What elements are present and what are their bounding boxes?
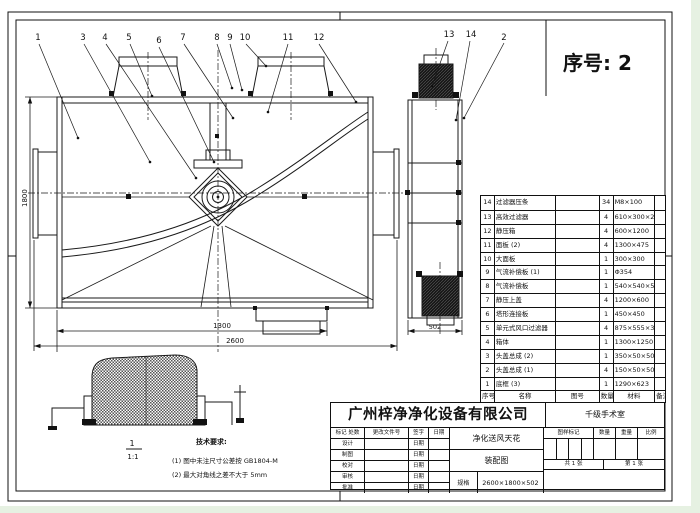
- rev-header-file: 更改文件号: [365, 428, 409, 438]
- part-remark: [655, 239, 665, 252]
- parts-header-drawing-no: 图号: [556, 391, 600, 402]
- part-spec: 1290×623: [614, 378, 656, 391]
- sign-blank: [365, 472, 409, 482]
- front-view: [28, 50, 404, 352]
- part-remark: [655, 294, 665, 307]
- part-name: 单元式风口过滤器: [495, 322, 556, 335]
- parts-row: 6 塔形连接板 1 450×450: [481, 307, 665, 321]
- sheet-total: 共 1 张: [544, 460, 604, 469]
- sign-date: 日期: [409, 472, 429, 482]
- detail-label: 1: [129, 439, 134, 448]
- part-drawing-no: [556, 294, 600, 307]
- title-block: 广州梓净净化设备有限公司 千级手术室 标记 处数 更改文件号 签字 日期 设计 …: [330, 402, 665, 490]
- tech-notes-title: 技术要求:: [196, 437, 227, 446]
- part-spec: 875×555×365: [614, 322, 656, 335]
- part-qty: 1: [600, 280, 614, 293]
- sign-date: 日期: [409, 461, 429, 471]
- part-no: 13: [481, 211, 495, 224]
- balloon-6: 6: [156, 36, 161, 46]
- parts-list: 14 过滤器压条 34 M8×100 13 高效过滤器 4 610×300×29…: [480, 195, 666, 403]
- parts-row: 7 静压上盖 4 1200×600: [481, 293, 665, 307]
- meta-header-mark: 图样标记: [544, 428, 594, 438]
- part-drawing-no: [556, 196, 600, 210]
- parts-header-row: 序号 名称 图号 数量 材料 备注: [481, 390, 665, 402]
- sign-date: 日期: [409, 483, 429, 493]
- part-remark: [655, 364, 665, 377]
- company-name: 广州梓净净化设备有限公司: [331, 403, 546, 427]
- part-remark: [655, 266, 665, 279]
- project-name: 千级手术室: [546, 403, 664, 427]
- parts-row: 2 头盖总成 (1) 4 150×50×50: [481, 363, 665, 377]
- detail-view: [48, 355, 246, 449]
- sign-date: 日期: [409, 439, 429, 449]
- part-remark: [655, 322, 665, 335]
- part-qty: 34: [600, 196, 614, 210]
- parts-row: 10 大面板 1 300×300: [481, 252, 665, 266]
- serial-number: 序号: 2: [563, 51, 632, 75]
- part-qty: 4: [600, 225, 614, 238]
- part-drawing-no: [556, 350, 600, 363]
- dim-total-width-label: 2600: [226, 337, 244, 345]
- part-drawing-no: [556, 280, 600, 293]
- parts-row: 5 单元式风口过滤器 4 875×555×365: [481, 321, 665, 335]
- sign-blank: [429, 461, 449, 471]
- part-remark: [655, 253, 665, 266]
- spec-row: 规格 2600×1800×502: [450, 472, 543, 493]
- part-remark: [655, 211, 665, 224]
- balloon-4: 4: [102, 33, 107, 43]
- part-spec: 1200×600: [614, 294, 656, 307]
- part-drawing-no: [556, 211, 600, 224]
- sign-blank: [365, 483, 409, 493]
- part-name: 气流补偿板: [495, 280, 556, 293]
- parts-header-remark: 备注: [655, 391, 665, 402]
- balloon-10: 10: [240, 33, 251, 43]
- part-no: 9: [481, 266, 495, 279]
- meta-header-qty: 数量: [594, 428, 616, 438]
- part-spec: M8×100: [614, 196, 656, 210]
- engineering-drawing-page: { "serial": { "text": "序号: 2" }, "balloo…: [0, 0, 700, 513]
- part-no: 12: [481, 225, 495, 238]
- part-no: 6: [481, 308, 495, 321]
- part-spec: 1300×475: [614, 239, 656, 252]
- product-info: 净化送风天花 装配图 规格 2600×1800×502: [450, 428, 544, 493]
- spec-label: 规格: [450, 472, 478, 493]
- side-view: [405, 48, 463, 334]
- dim-height-label: 1800: [21, 189, 29, 207]
- balloon-leaders: [39, 41, 504, 179]
- part-qty: 1: [600, 266, 614, 279]
- sign-blank: [365, 461, 409, 471]
- part-no: 10: [481, 253, 495, 266]
- meta-blank: [544, 470, 664, 493]
- balloon-7: 7: [180, 33, 185, 43]
- part-remark: [655, 378, 665, 391]
- part-spec: 150×50×50: [614, 364, 656, 377]
- rev-header-mark: 标记 处数: [331, 428, 365, 438]
- balloon-9: 9: [227, 33, 232, 43]
- parts-header-material: 材料: [614, 391, 656, 402]
- balloon-3: 3: [80, 33, 85, 43]
- part-no: 11: [481, 239, 495, 252]
- sign-label: 校对: [331, 461, 365, 471]
- part-name: 底框 (3): [495, 378, 556, 391]
- part-qty: 1: [600, 350, 614, 363]
- balloon-14: 14: [466, 30, 477, 40]
- sign-blank: [365, 450, 409, 460]
- part-no: 7: [481, 294, 495, 307]
- part-drawing-no: [556, 308, 600, 321]
- part-no: 3: [481, 350, 495, 363]
- part-spec: 1300×1250: [614, 336, 656, 349]
- rev-header-date: 日期: [429, 428, 449, 438]
- part-name: 静压上盖: [495, 294, 556, 307]
- sign-blank: [365, 439, 409, 449]
- parts-row: 8 气流补偿板 1 540×540×50: [481, 279, 665, 293]
- sign-date: 日期: [409, 450, 429, 460]
- parts-header-qty: 数量: [600, 391, 614, 402]
- dim-half-width-label: 1300: [213, 322, 231, 330]
- part-spec: Φ354: [614, 266, 656, 279]
- balloon-12: 12: [314, 33, 325, 43]
- part-name: 气流补偿板 (1): [495, 266, 556, 279]
- part-name: 头盖总成 (2): [495, 350, 556, 363]
- parts-row: 1 底框 (3) 1 1290×623: [481, 377, 665, 391]
- part-name: 面板 (2): [495, 239, 556, 252]
- dimensions: [25, 97, 462, 352]
- drawing-type: 装配图: [450, 450, 543, 472]
- parts-row: 4 箱体 1 1300×1250: [481, 335, 665, 349]
- balloon-11: 11: [283, 33, 294, 43]
- part-qty: 1: [600, 253, 614, 266]
- sheet-page: 第 1 张: [604, 460, 664, 469]
- part-qty: 4: [600, 239, 614, 252]
- tech-note-1: (1) 图中未注尺寸公差按 GB1804-M: [172, 456, 278, 465]
- part-name: 过滤器压条: [495, 196, 556, 210]
- sign-blank: [429, 472, 449, 482]
- part-remark: [655, 225, 665, 238]
- part-name: 箱体: [495, 336, 556, 349]
- part-name: 大面板: [495, 253, 556, 266]
- product-name: 净化送风天花: [450, 428, 543, 450]
- part-drawing-no: [556, 253, 600, 266]
- sign-blank: [429, 439, 449, 449]
- part-no: 5: [481, 322, 495, 335]
- meta-cell: [638, 439, 664, 459]
- parts-row: 9 气流补偿板 (1) 1 Φ354: [481, 265, 665, 279]
- balloon-labels: 1 3 4 5 6 7 8 9 10 11 12 13 14 2: [35, 30, 506, 46]
- tech-note-2: (2) 最大对角线之差不大于 5mm: [172, 470, 267, 479]
- part-no: 2: [481, 364, 495, 377]
- meta-header-weight: 重量: [616, 428, 638, 438]
- part-remark: [655, 280, 665, 293]
- sign-label: 设计: [331, 439, 365, 449]
- part-remark: [655, 196, 665, 210]
- parts-row: 13 高效过滤器 4 610×300×292: [481, 210, 665, 224]
- parts-header-no: 序号: [481, 391, 495, 402]
- part-no: 1: [481, 378, 495, 391]
- sign-blank: [429, 483, 449, 493]
- sign-label: 批准: [331, 483, 365, 493]
- revision-signature-grid: 标记 处数 更改文件号 签字 日期 设计 日期 制图 日期 校对 日期: [331, 428, 450, 493]
- part-no: 8: [481, 280, 495, 293]
- sign-blank: [429, 450, 449, 460]
- part-no: 14: [481, 196, 495, 210]
- parts-row: 14 过滤器压条 34 M8×100: [481, 196, 665, 210]
- part-qty: 1: [600, 308, 614, 321]
- meta-cell: [544, 439, 557, 459]
- detail-scale: 1:1: [127, 453, 138, 461]
- part-remark: [655, 336, 665, 349]
- part-qty: 4: [600, 322, 614, 335]
- part-qty: 4: [600, 294, 614, 307]
- parts-row: 3 头盖总成 (2) 1 350×50×50: [481, 349, 665, 363]
- part-drawing-no: [556, 225, 600, 238]
- balloon-8: 8: [214, 33, 219, 43]
- part-name: 头盖总成 (1): [495, 364, 556, 377]
- part-spec: 540×540×50: [614, 280, 656, 293]
- part-name: 静压箱: [495, 225, 556, 238]
- balloon-2: 2: [501, 33, 506, 43]
- part-qty: 4: [600, 364, 614, 377]
- meta-cell: [616, 439, 638, 459]
- part-name: 高效过滤器: [495, 211, 556, 224]
- part-spec: 610×300×292: [614, 211, 656, 224]
- balloon-5: 5: [126, 33, 131, 43]
- balloon-1: 1: [35, 33, 40, 43]
- part-drawing-no: [556, 239, 600, 252]
- part-remark: [655, 308, 665, 321]
- meta-cell: [594, 439, 616, 459]
- parts-row: 11 面板 (2) 4 1300×475: [481, 238, 665, 252]
- part-qty: 4: [600, 211, 614, 224]
- meta-header-scale: 比例: [638, 428, 664, 438]
- parts-row: 12 静压箱 4 600×1200: [481, 224, 665, 238]
- balloon-13: 13: [444, 30, 455, 40]
- part-drawing-no: [556, 378, 600, 391]
- part-remark: [655, 350, 665, 363]
- part-drawing-no: [556, 266, 600, 279]
- part-name: 塔形连接板: [495, 308, 556, 321]
- part-drawing-no: [556, 364, 600, 377]
- dim-depth-label: 502: [429, 323, 441, 331]
- parts-header-name: 名称: [495, 391, 556, 402]
- part-drawing-no: [556, 322, 600, 335]
- part-spec: 450×450: [614, 308, 656, 321]
- sign-label: 制图: [331, 450, 365, 460]
- sign-label: 审核: [331, 472, 365, 482]
- part-drawing-no: [556, 336, 600, 349]
- part-no: 4: [481, 336, 495, 349]
- meta-cell: [569, 439, 582, 459]
- meta-cell: [557, 439, 570, 459]
- part-qty: 1: [600, 336, 614, 349]
- tech-notes: 技术要求: (1) 图中未注尺寸公差按 GB1804-M (2) 最大对角线之差…: [172, 437, 278, 479]
- rev-header-sign: 签字: [409, 428, 429, 438]
- spec-value: 2600×1800×502: [478, 479, 543, 487]
- part-spec: 350×50×50: [614, 350, 656, 363]
- drawing-meta: 图样标记 数量 重量 比例 共 1 张 第 1 张: [544, 428, 664, 493]
- part-qty: 1: [600, 378, 614, 391]
- part-spec: 300×300: [614, 253, 656, 266]
- meta-cell: [582, 439, 595, 459]
- part-spec: 600×1200: [614, 225, 656, 238]
